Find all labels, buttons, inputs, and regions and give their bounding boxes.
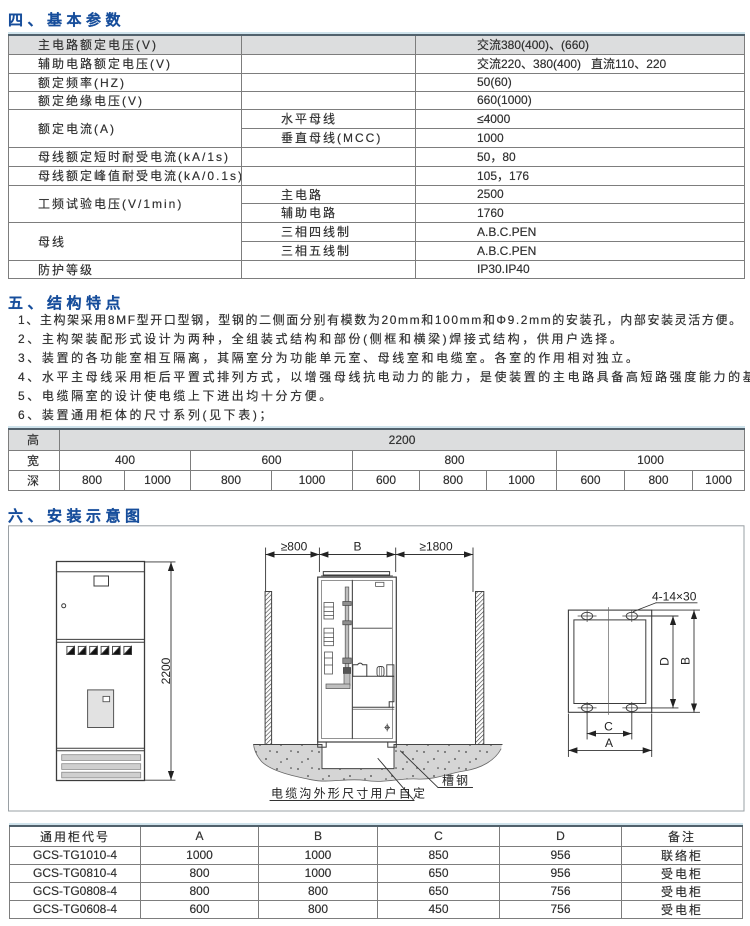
svg-text:B: B (679, 657, 693, 665)
svg-text:2200: 2200 (159, 657, 173, 684)
svg-text:电缆沟外形尺寸用户自定: 电缆沟外形尺寸用户自定 (271, 786, 427, 801)
svg-text:槽钢: 槽钢 (442, 774, 470, 788)
svg-text:A: A (605, 736, 613, 750)
svg-text:≥1800: ≥1800 (419, 540, 453, 554)
svg-text:4-14×30: 4-14×30 (652, 590, 697, 604)
svg-text:≥800: ≥800 (281, 540, 308, 554)
svg-text:C: C (604, 720, 613, 734)
svg-text:D: D (658, 657, 672, 666)
svg-text:B: B (353, 540, 361, 554)
